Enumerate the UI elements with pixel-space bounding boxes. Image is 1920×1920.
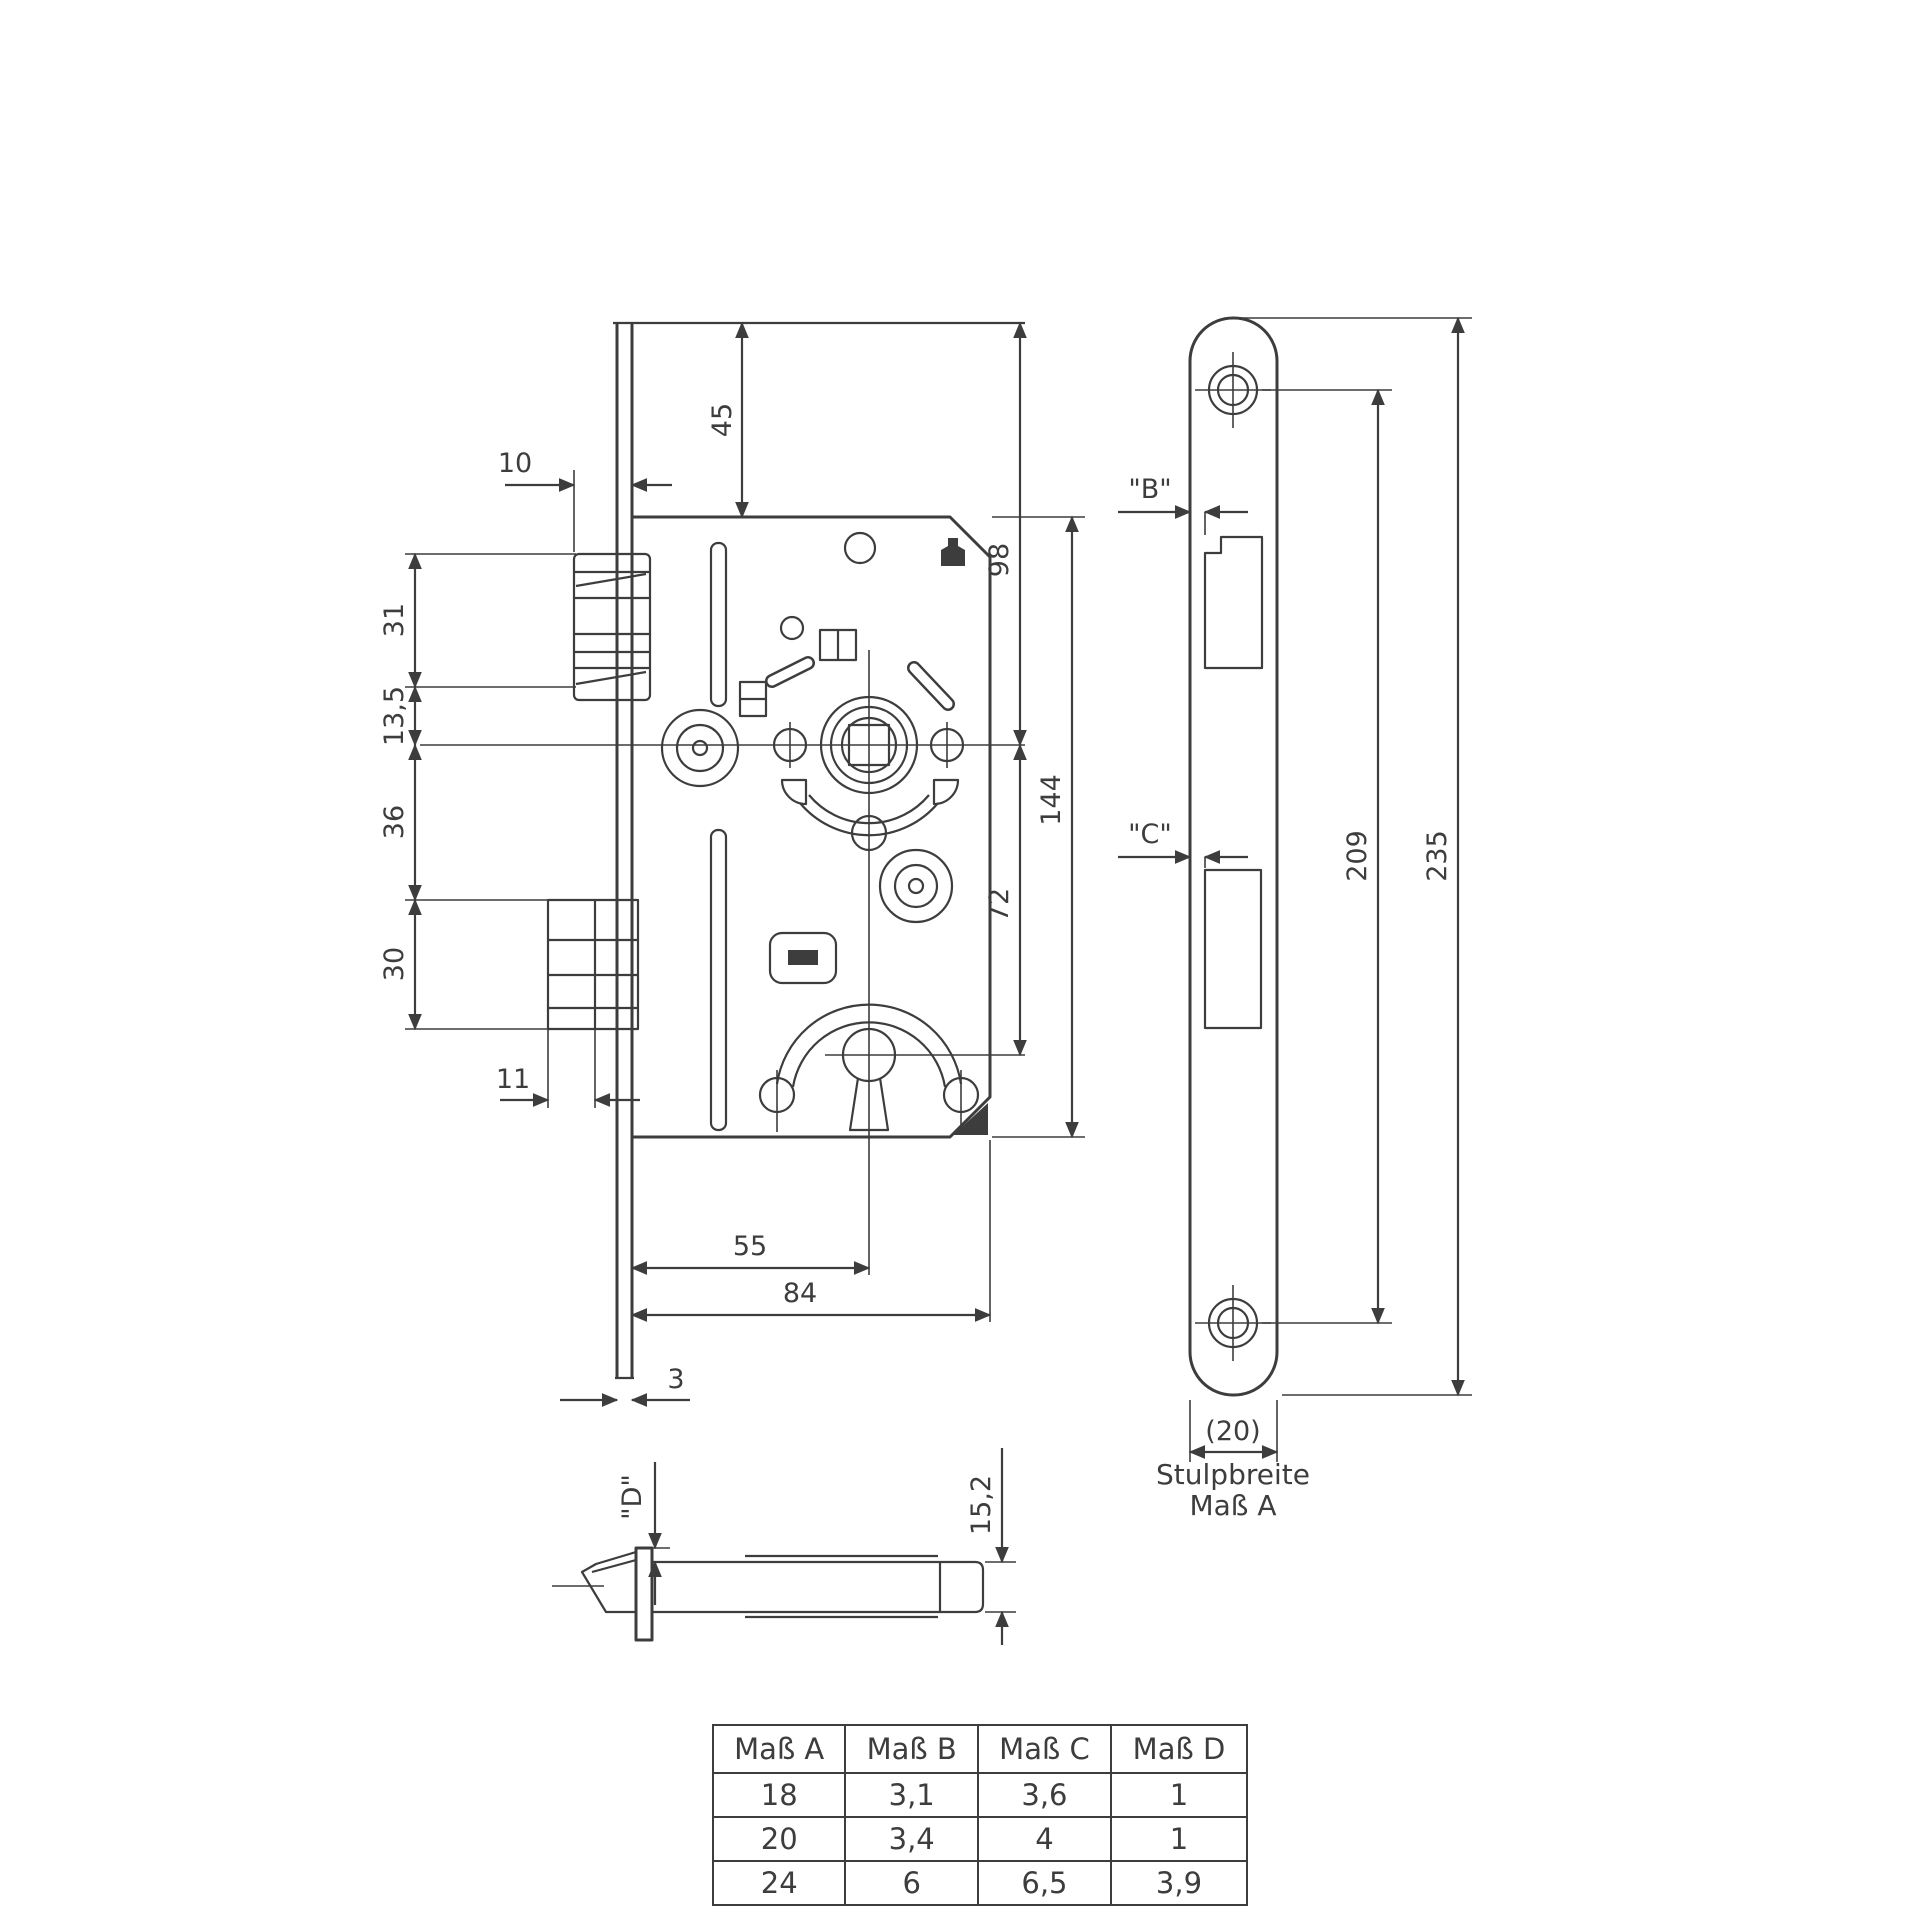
dimension-D: "D" [617, 1462, 670, 1605]
faceplate [615, 323, 634, 1378]
dim-centerline-to-keyhole: 72 [984, 888, 1015, 922]
lever-plate [770, 933, 836, 983]
lock-technical-drawing: 45 10 31 13,5 36 30 11 [0, 0, 1920, 1920]
table-header-mass-c: Maß C [978, 1725, 1111, 1773]
table-row: 20 3,4 4 1 [713, 1817, 1247, 1861]
screw-hole-bottom [1195, 1285, 1271, 1361]
dim-plate-top-to-case: 45 [707, 403, 738, 437]
dimension-45: 45 [613, 323, 1025, 517]
dim-latch-protrusion: 10 [498, 448, 532, 479]
latch-head-profile [552, 1552, 636, 1612]
table-cell: 3,4 [845, 1817, 978, 1861]
top-hole [845, 533, 875, 563]
table-cell: 3,6 [978, 1773, 1111, 1817]
bolt-cutout [1205, 870, 1261, 1028]
side-view: "B" "C" 209 235 (20) Stulpbreite Maß A [1118, 318, 1472, 1522]
dim-plate-width: (20) [1205, 1416, 1260, 1447]
dimension-C: "C" [1118, 819, 1248, 868]
follower-spring [782, 780, 958, 850]
dimension-209: 209 [1262, 390, 1392, 1323]
dim-case-height: 144 [1036, 774, 1067, 826]
rivet-boss [880, 850, 952, 922]
upper-slot [711, 543, 726, 706]
dimension-15-2: 15,2 [966, 1448, 1016, 1645]
dimension-3: 3 [560, 1364, 690, 1400]
guide-pin [662, 710, 738, 786]
table-cell: 20 [713, 1817, 845, 1861]
dimension-table: Maß A Maß B Maß C Maß D 18 3,1 3,6 1 20 … [712, 1724, 1248, 1906]
table-header-row: Maß A Maß B Maß C Maß D [713, 1725, 1247, 1773]
dim-plate-top-to-centerline: 98 [984, 543, 1015, 577]
dim-offset-d: "D" [617, 1474, 648, 1520]
dim-bolt-protrusion: 11 [496, 1064, 530, 1095]
faceplate-edge [636, 1548, 652, 1640]
dim-screw-spacing: 209 [1342, 830, 1373, 882]
table-header-mass-d: Maß D [1111, 1725, 1247, 1773]
table-header-mass-a: Maß A [713, 1725, 845, 1773]
table-cell: 3,1 [845, 1773, 978, 1817]
table-cell: 1 [1111, 1773, 1247, 1817]
dimension-10: 10 [498, 448, 672, 552]
deadbolt [548, 900, 638, 1029]
marking-stamp-icon [941, 538, 965, 566]
small-hole [781, 617, 803, 639]
table-cell: 6,5 [978, 1861, 1111, 1905]
table-header-mass-b: Maß B [845, 1725, 978, 1773]
dim-latch-offset: "B" [1128, 474, 1171, 505]
dim-plate-thickness: 3 [667, 1364, 684, 1395]
drawing-svg: 45 10 31 13,5 36 30 11 [0, 0, 1920, 1920]
dim-latch-height: 31 [379, 603, 410, 637]
table-row: 24 6 6,5 3,9 [713, 1861, 1247, 1905]
dim-centerline-to-bolt: 36 [379, 805, 410, 839]
table-cell: 24 [713, 1861, 845, 1905]
dimension-B: "B" [1118, 474, 1248, 535]
dim-case-depth: 84 [783, 1278, 817, 1309]
table-row: 18 3,1 3,6 1 [713, 1773, 1247, 1817]
case-slab [652, 1562, 983, 1612]
table-cell: 4 [978, 1817, 1111, 1861]
table-cell: 1 [1111, 1817, 1247, 1861]
lower-slot [711, 830, 726, 1130]
bottom-view: "D" 15,2 [552, 1448, 1016, 1645]
right-dimension-chain: 98 72 144 [984, 323, 1085, 1137]
dim-backset: 55 [733, 1231, 767, 1262]
front-view: 45 10 31 13,5 36 30 11 [379, 323, 1085, 1400]
dim-case-thickness: 15,2 [966, 1475, 997, 1535]
lock-case [632, 517, 990, 1137]
latch-cutout [1205, 537, 1262, 668]
caption-mass-a: Maß A [1189, 1489, 1276, 1522]
dim-bolt-offset: "C" [1128, 819, 1172, 850]
dim-bolt-height: 30 [379, 947, 410, 981]
table-cell: 6 [845, 1861, 978, 1905]
dimension-55: 55 [632, 1231, 869, 1268]
caption-stulpbreite: Stulpbreite [1156, 1458, 1310, 1491]
table-cell: 18 [713, 1773, 845, 1817]
dim-plate-length: 235 [1422, 830, 1453, 882]
latch-bolt [574, 554, 650, 700]
table-cell: 3,9 [1111, 1861, 1247, 1905]
left-dimension-chain: 31 13,5 36 30 [379, 554, 576, 1029]
dimension-84: 84 [632, 1140, 990, 1322]
dim-latch-to-centerline: 13,5 [379, 686, 410, 746]
dimension-20: (20) Stulpbreite Maß A [1156, 1400, 1310, 1522]
screw-hole-top [1195, 352, 1271, 428]
lock-internals [662, 533, 978, 1132]
